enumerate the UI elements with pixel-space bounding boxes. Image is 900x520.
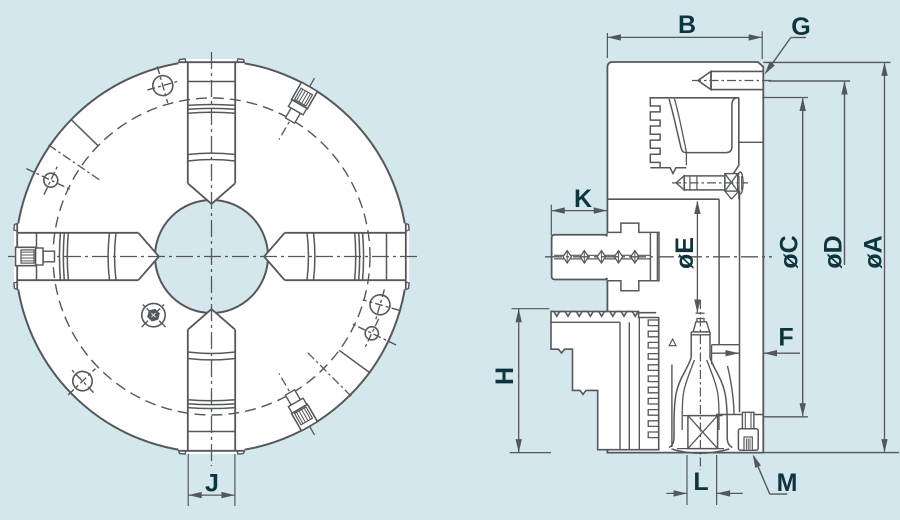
svg-text:øE: øE bbox=[671, 237, 699, 269]
svg-text:H: H bbox=[491, 367, 519, 385]
svg-text:øA: øA bbox=[860, 235, 888, 268]
svg-text:K: K bbox=[574, 185, 592, 213]
svg-text:M: M bbox=[777, 469, 798, 497]
svg-text:L: L bbox=[693, 468, 708, 496]
svg-text:øD: øD bbox=[820, 235, 848, 268]
svg-text:B: B bbox=[678, 11, 696, 39]
svg-text:øC: øC bbox=[776, 235, 804, 268]
svg-text:F: F bbox=[778, 324, 793, 352]
svg-text:G: G bbox=[791, 13, 810, 41]
svg-text:J: J bbox=[205, 469, 219, 497]
